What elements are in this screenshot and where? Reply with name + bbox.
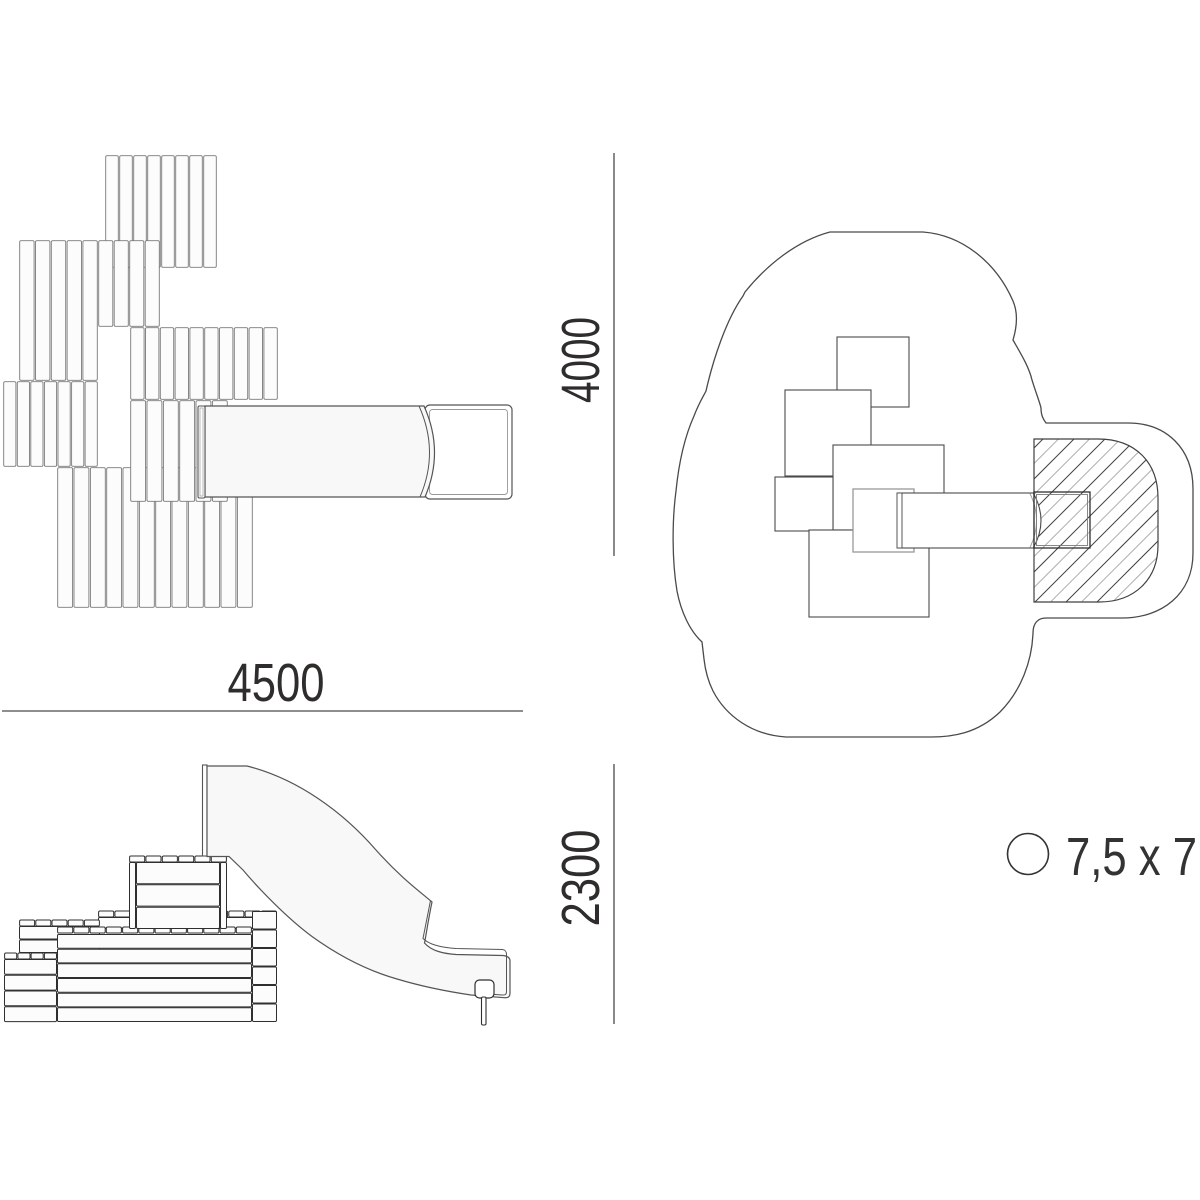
drawing-sheet: 4500 4000 2300 7,5 x 7 xyxy=(0,0,1200,1200)
slide-landing-pad xyxy=(425,405,512,499)
elevation-cells xyxy=(253,912,277,1022)
elevation-boards xyxy=(130,863,136,929)
dim-label-depth: 4000 xyxy=(551,317,611,403)
plan-top-view xyxy=(4,156,512,608)
platform-square xyxy=(775,477,833,531)
dim-label-width: 4500 xyxy=(228,653,325,713)
slide-leg xyxy=(482,997,487,1025)
slide-start-plate xyxy=(897,493,902,548)
side-elevation-view xyxy=(5,765,511,1025)
elevation-boards xyxy=(221,863,227,929)
elevation-boards xyxy=(137,863,220,929)
plan-slat-block xyxy=(20,241,98,381)
elevation-cap xyxy=(20,920,100,926)
slide-back-plate xyxy=(203,765,208,856)
elevation-boards xyxy=(5,960,57,1022)
safety-zone-plan-view xyxy=(673,232,1200,737)
pole-size-label: 7,5 x 7 xyxy=(1066,827,1197,887)
elevation-boards xyxy=(58,935,252,1022)
pole-diameter-icon xyxy=(1008,834,1049,875)
slide-body xyxy=(205,406,435,497)
slide-start-plate xyxy=(198,406,205,498)
plan-slide xyxy=(198,405,512,499)
playground-technical-drawing: 4500 4000 2300 7,5 x 7 xyxy=(0,0,1200,1200)
elevation-cap xyxy=(5,953,57,959)
plan-slat-block xyxy=(131,328,278,400)
plan-slat-block xyxy=(4,382,98,467)
slide-body xyxy=(898,493,1034,548)
dim-label-height: 2300 xyxy=(551,830,611,927)
slide-foot xyxy=(475,980,494,998)
